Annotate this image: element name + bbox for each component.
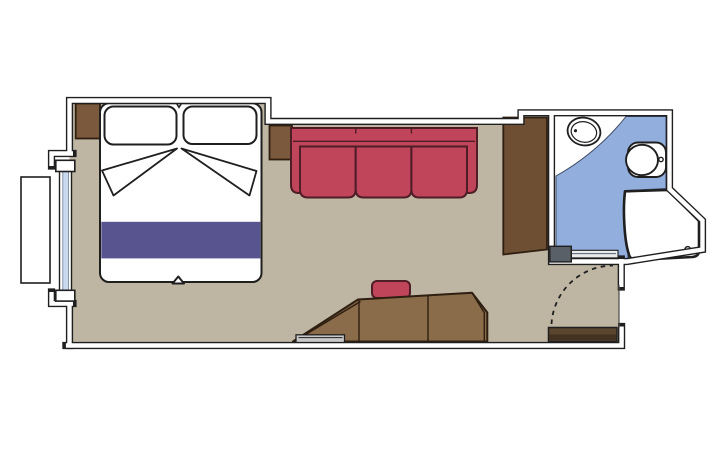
toilet-flush-button xyxy=(659,157,663,161)
sofa-seat-cushion xyxy=(300,147,356,198)
entry-door-leaf-shade xyxy=(550,335,617,341)
wardrobe xyxy=(503,118,547,255)
pillow-right xyxy=(184,107,257,145)
sofa-group xyxy=(291,128,477,198)
double-bed-group xyxy=(100,103,262,283)
window-glass xyxy=(63,168,69,293)
stool xyxy=(372,281,410,298)
window-exterior-box xyxy=(21,177,50,283)
entry-door-group xyxy=(549,328,618,342)
sofa-seat-cushion xyxy=(411,147,467,198)
floor-plan xyxy=(0,0,726,449)
bed-runner xyxy=(101,222,260,259)
window-frame-cap-bottom xyxy=(56,290,75,301)
window-frame-cap-top xyxy=(56,160,75,171)
sofa-seat-cushion xyxy=(356,147,412,198)
toilet xyxy=(626,145,658,175)
pillow-left xyxy=(105,107,177,145)
bathroom-door-handle xyxy=(550,246,572,262)
nightstand-right xyxy=(270,126,293,160)
floor-plan-page xyxy=(0,0,726,449)
nightstand-left xyxy=(76,104,100,139)
